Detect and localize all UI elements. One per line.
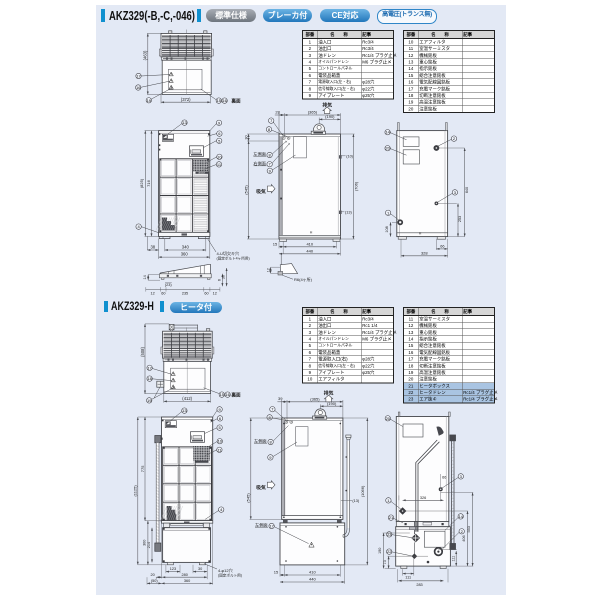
svg-text:38: 38 — [150, 245, 155, 250]
svg-text:60: 60 — [204, 292, 208, 296]
svg-text:15: 15 — [273, 241, 278, 246]
svg-text:283: 283 — [416, 583, 422, 587]
svg-text:R6(4ヶ所): R6(4ヶ所) — [294, 276, 313, 282]
svg-text:235: 235 — [182, 292, 188, 296]
svg-text:20: 20 — [385, 146, 390, 151]
svg-text:(365): (365) — [310, 396, 320, 401]
svg-text:16: 16 — [222, 98, 227, 103]
svg-text:111: 111 — [452, 556, 456, 562]
svg-text:4-U切欠キ穴: 4-U切欠キ穴 — [217, 250, 239, 256]
svg-text:22: 22 — [387, 549, 392, 554]
svg-text:17: 17 — [269, 524, 274, 529]
svg-text:(372): (372) — [181, 97, 191, 102]
svg-text:108: 108 — [385, 226, 389, 232]
svg-text:(706): (706) — [354, 181, 359, 191]
svg-text:(1125): (1125) — [133, 485, 138, 497]
svg-text:440: 440 — [309, 577, 316, 582]
svg-text:18: 18 — [147, 376, 152, 381]
svg-text:13: 13 — [182, 408, 187, 413]
svg-text:吸気: 吸気 — [256, 188, 266, 195]
svg-text:280: 280 — [182, 573, 188, 577]
svg-text:(545): (545) — [246, 493, 251, 503]
svg-text:14: 14 — [143, 275, 147, 279]
svg-text:(190): (190) — [327, 401, 337, 406]
svg-text:553: 553 — [467, 526, 471, 532]
svg-text:66: 66 — [440, 245, 444, 249]
svg-text:(1066): (1066) — [360, 485, 365, 497]
svg-text:39: 39 — [278, 396, 283, 401]
svg-text:716: 716 — [146, 179, 151, 186]
svg-text:H: H — [419, 231, 422, 235]
svg-text:(545): (545) — [243, 185, 248, 195]
svg-text:328: 328 — [421, 250, 428, 255]
svg-text:16: 16 — [136, 85, 141, 90]
svg-text:(825): (825) — [139, 178, 144, 188]
svg-text:360: 360 — [184, 579, 190, 583]
svg-text:15: 15 — [217, 98, 222, 103]
svg-text:340: 340 — [182, 245, 190, 250]
svg-text:AKZ329: AKZ329 — [199, 172, 206, 175]
svg-text:15: 15 — [220, 392, 225, 397]
svg-text:20: 20 — [150, 573, 154, 577]
svg-text:4-φ12穴: 4-φ12穴 — [218, 567, 233, 573]
svg-text:66: 66 — [442, 476, 446, 480]
svg-text:23: 23 — [387, 532, 392, 537]
svg-text:30: 30 — [244, 135, 248, 139]
svg-text:(23): (23) — [165, 283, 172, 287]
svg-text:17: 17 — [147, 365, 152, 370]
svg-text:30: 30 — [222, 275, 226, 279]
svg-text:10: 10 — [218, 439, 223, 444]
svg-text:(508): (508) — [140, 347, 145, 357]
svg-text:60: 60 — [161, 292, 165, 296]
svg-text:111: 111 — [405, 575, 411, 579]
svg-text:410: 410 — [306, 241, 313, 246]
svg-text:640: 640 — [465, 187, 469, 193]
svg-text:(50): (50) — [151, 579, 158, 583]
svg-text:12: 12 — [266, 268, 270, 272]
svg-text:360: 360 — [181, 252, 189, 257]
svg-text:H: H — [310, 230, 313, 234]
svg-text:30: 30 — [198, 567, 202, 571]
svg-text:123: 123 — [170, 567, 176, 571]
svg-text:(固定ボルト4ヶ所用): (固定ボルト4ヶ所用) — [217, 256, 250, 261]
svg-text:190: 190 — [378, 548, 382, 554]
svg-text:14: 14 — [385, 130, 390, 135]
svg-text:12: 12 — [213, 292, 217, 296]
svg-text:253: 253 — [458, 216, 462, 222]
svg-text:28: 28 — [275, 109, 280, 114]
svg-text:775: 775 — [140, 465, 145, 472]
svg-text:(365): (365) — [308, 110, 318, 115]
svg-text:21: 21 — [389, 515, 394, 520]
svg-text:73: 73 — [383, 560, 387, 564]
svg-text:410: 410 — [309, 570, 316, 575]
svg-text:(固定ボルト用): (固定ボルト用) — [218, 572, 242, 577]
svg-text:裏面: 裏面 — [230, 391, 241, 398]
svg-text:(463): (463) — [143, 50, 148, 60]
svg-text:19: 19 — [147, 98, 152, 103]
svg-text:(412): (412) — [182, 396, 192, 401]
svg-text:326: 326 — [420, 496, 426, 500]
svg-text:裏面: 裏面 — [230, 97, 241, 104]
svg-text:(13): (13) — [345, 211, 352, 215]
svg-text:19: 19 — [147, 398, 152, 403]
svg-text:12: 12 — [150, 292, 154, 296]
svg-text:13: 13 — [182, 120, 187, 125]
svg-text:440: 440 — [306, 248, 313, 253]
svg-text:14: 14 — [458, 514, 463, 519]
svg-text:17: 17 — [136, 74, 141, 79]
svg-text:10: 10 — [217, 154, 222, 159]
svg-text:吸気: 吸気 — [256, 484, 266, 491]
svg-text:(190): (190) — [325, 114, 335, 119]
svg-text:214: 214 — [147, 542, 151, 548]
svg-text:15: 15 — [274, 570, 279, 575]
svg-text:16: 16 — [225, 392, 230, 397]
svg-text:20: 20 — [386, 416, 391, 421]
svg-text:(13): (13) — [352, 499, 359, 503]
svg-text:(10): (10) — [346, 155, 353, 159]
svg-text:406: 406 — [462, 535, 466, 541]
